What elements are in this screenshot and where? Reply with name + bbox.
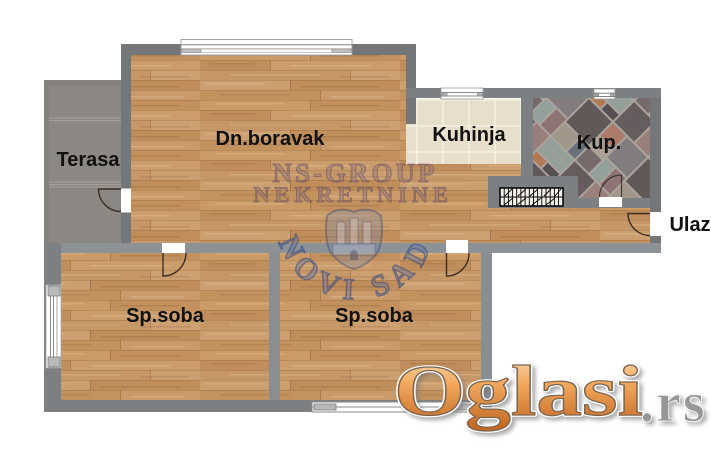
svg-text:Ulaz: Ulaz <box>669 214 710 236</box>
svg-text:.rs: .rs <box>640 372 707 434</box>
svg-text:Kuhinja: Kuhinja <box>432 124 506 146</box>
svg-text:Terasa: Terasa <box>56 149 120 171</box>
svg-text:Sp.soba: Sp.soba <box>335 305 414 327</box>
svg-text:Kup.: Kup. <box>577 132 621 154</box>
svg-text:NEKRETNINE: NEKRETNINE <box>253 182 452 207</box>
svg-text:Dn.boravak: Dn.boravak <box>216 128 326 150</box>
svg-text:Oglasi: Oglasi <box>394 351 643 431</box>
svg-text:Sp.soba: Sp.soba <box>126 305 205 327</box>
